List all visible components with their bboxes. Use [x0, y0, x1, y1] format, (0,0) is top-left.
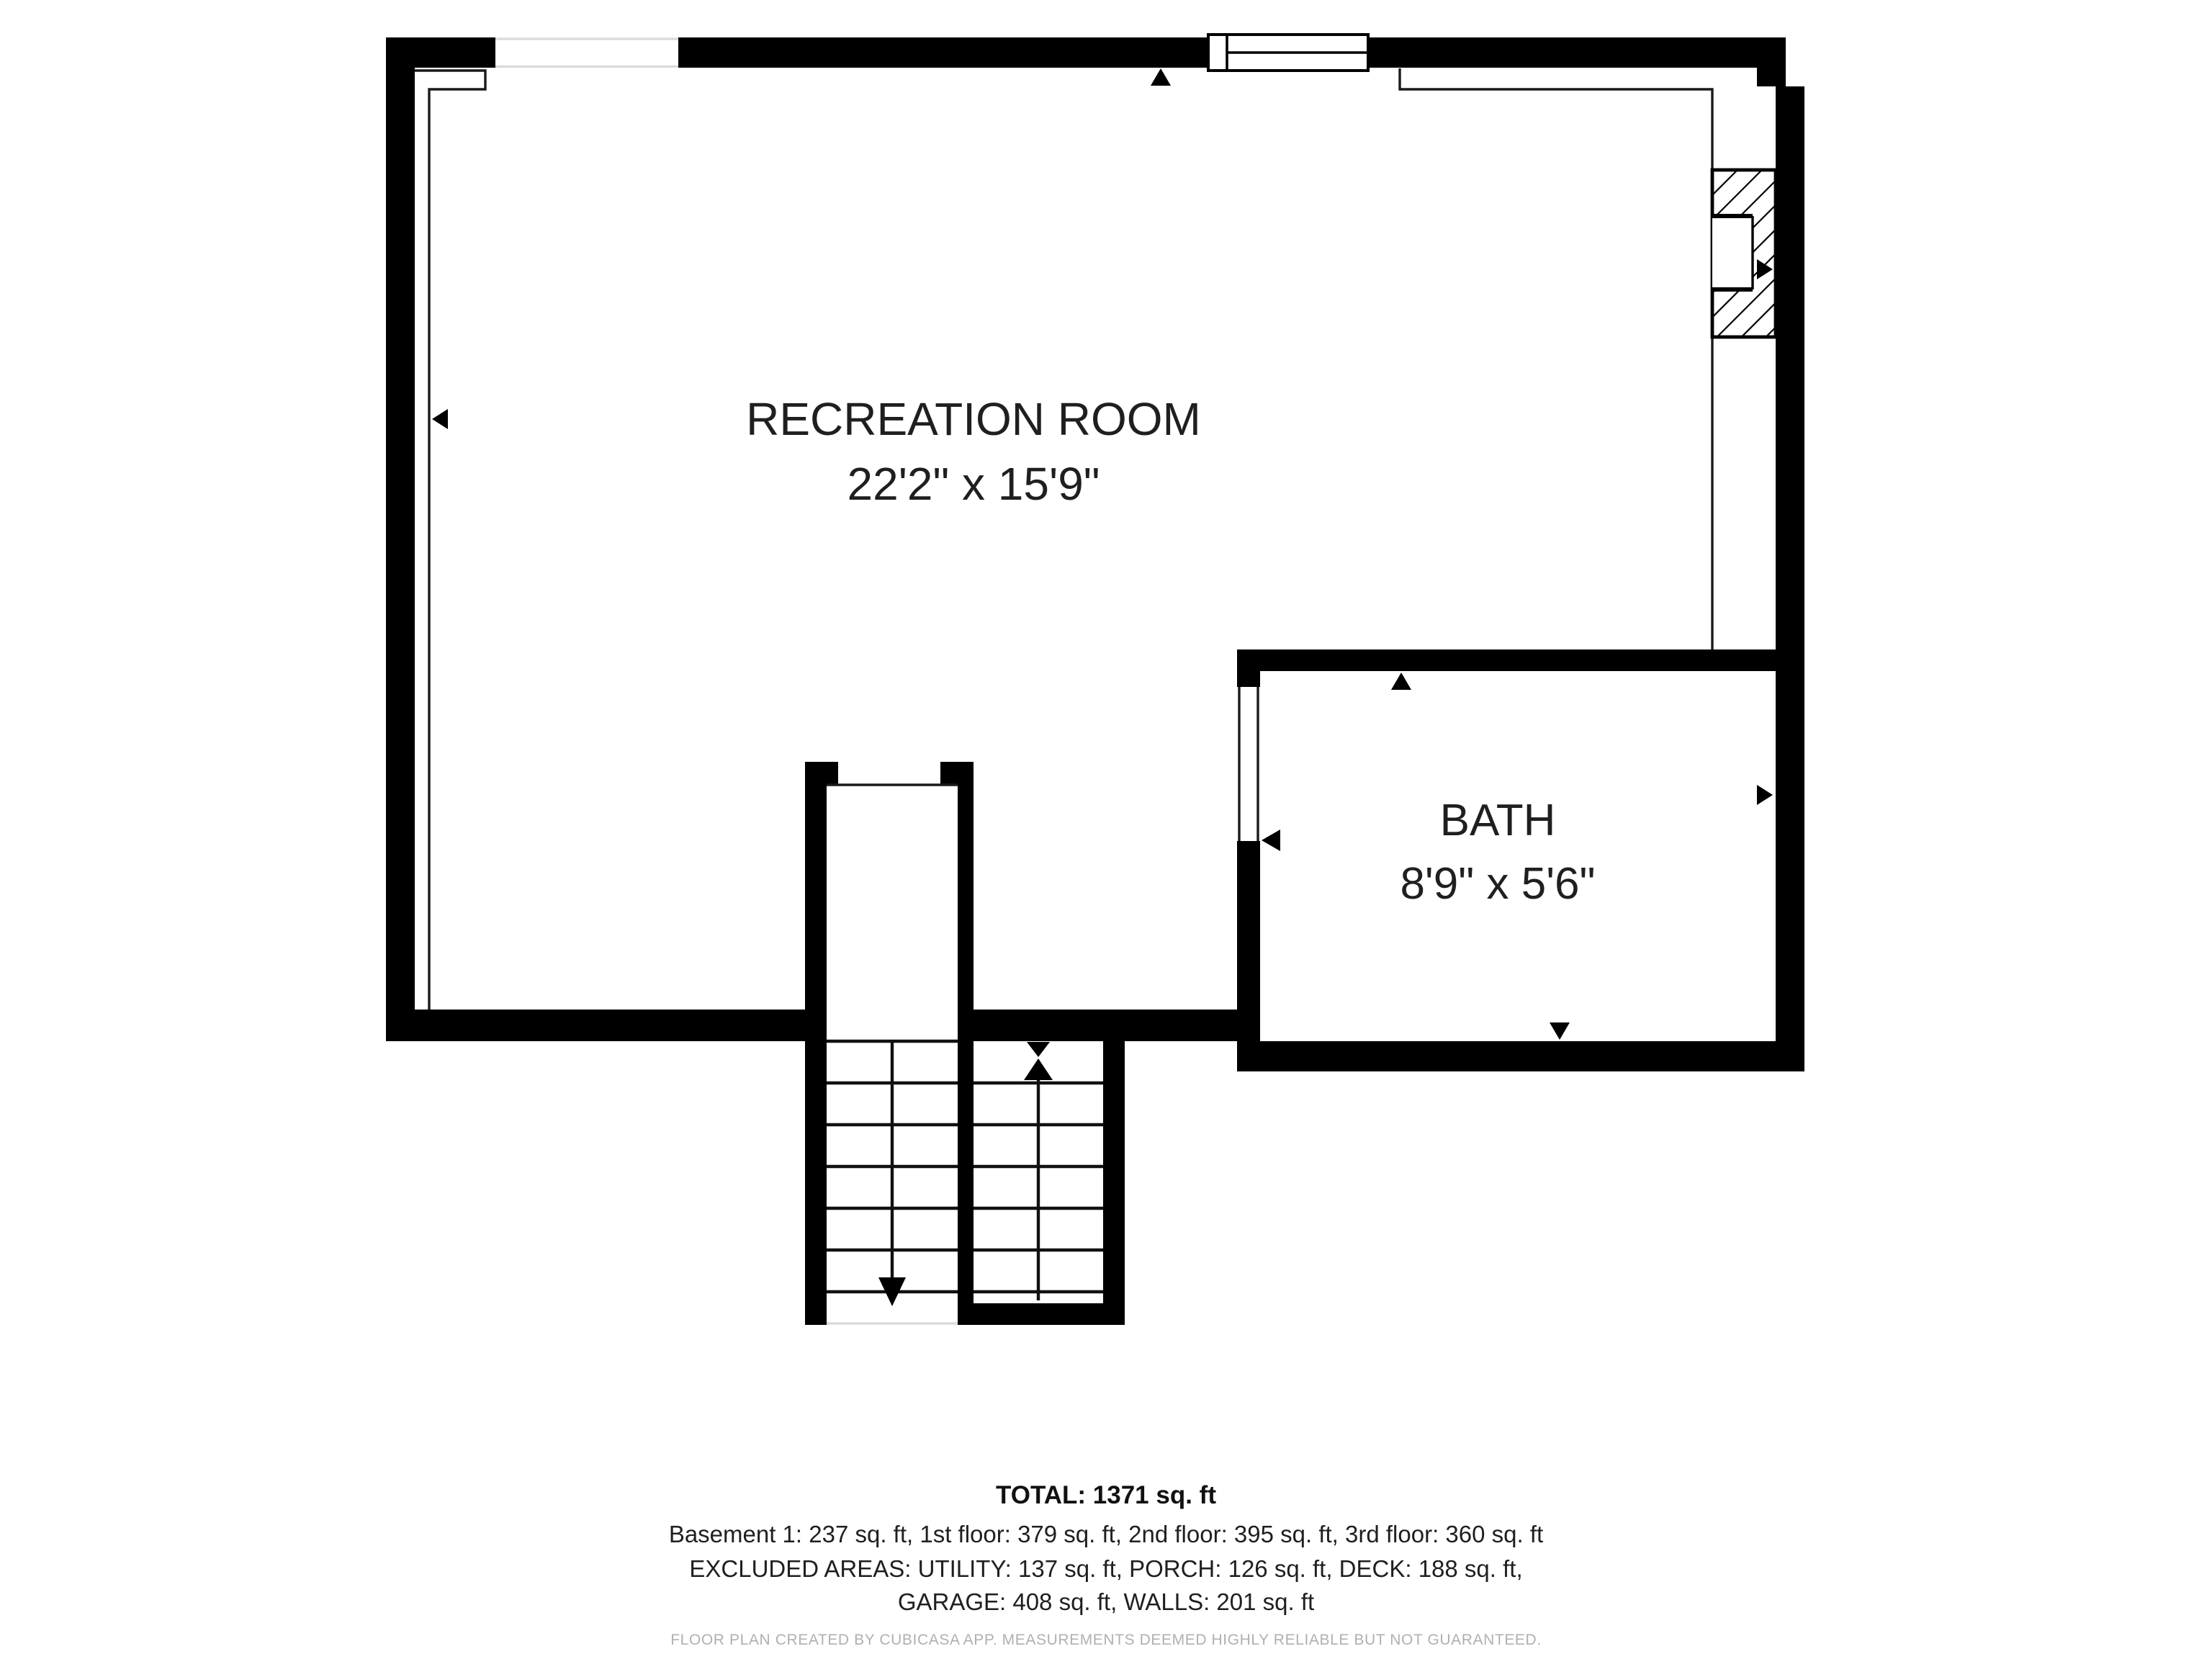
stair-bottom-wall: [958, 1303, 1125, 1325]
right-interior-outline-upper: [1400, 68, 1712, 170]
wall-top-right-corner-step: [1757, 68, 1786, 86]
bath-door-jamb-upper: [1237, 671, 1260, 687]
bath-bottom-wall: [1237, 1041, 1804, 1071]
window-icon: [1208, 35, 1368, 71]
rec-room-west-arrow-icon: [432, 409, 448, 429]
chimney-flue-inset: [1712, 216, 1753, 289]
summary-excluded-line1: EXCLUDED AREAS: UTILITY: 137 sq. ft, POR…: [689, 1555, 1522, 1582]
recreation-room-label: RECREATION ROOM: [746, 393, 1201, 445]
stair-middle-wall: [958, 785, 974, 1303]
wall-bottom-west-segment: [386, 1010, 827, 1041]
wall-right: [1776, 86, 1804, 1071]
floor-plan: RECREATION ROOM 22'2" x 15'9" BATH 8'9" …: [0, 0, 2212, 1659]
stair-up-arrow: [1024, 1042, 1053, 1300]
floor-plan-page: RECREATION ROOM 22'2" x 15'9" BATH 8'9" …: [0, 0, 2212, 1659]
stair-down-arrow: [878, 1041, 906, 1306]
wall-bottom-east-segment: [958, 1010, 1260, 1041]
chimney-hatch: [1712, 170, 1776, 337]
disclaimer-footer: FLOOR PLAN CREATED BY CUBICASA APP. MEAS…: [670, 1632, 1542, 1648]
stair-up-arrowhead-icon: [1024, 1058, 1053, 1080]
wall-left: [386, 37, 415, 1041]
bath-west-arrow-icon: [1262, 829, 1280, 851]
recreation-room-dimensions: 22'2" x 15'9": [848, 458, 1100, 510]
stair-left-wall-cap: [805, 762, 838, 785]
left-interior-outline: [415, 71, 485, 1010]
staircase: [805, 762, 1125, 1325]
bath-dimensions: 8'9" x 5'6": [1400, 859, 1595, 909]
wall-top-middle-segment: [678, 37, 1208, 68]
rec-room-north-arrow-icon: [1151, 68, 1171, 86]
stair-middle-wall-cap: [940, 762, 974, 785]
exterior-walls: [386, 37, 1804, 1071]
summary-excluded-line2: GARAGE: 408 sq. ft, WALLS: 201 sq. ft: [898, 1588, 1314, 1615]
stair-left-wall: [805, 785, 827, 1325]
wall-top-right-segment: [1368, 37, 1786, 68]
summary-floors: Basement 1: 237 sq. ft, 1st floor: 379 s…: [669, 1521, 1543, 1547]
area-summary: TOTAL: 1371 sq. ft Basement 1: 237 sq. f…: [669, 1481, 1543, 1648]
bath-east-arrow-icon: [1757, 785, 1773, 805]
bath-left-wall: [1237, 841, 1260, 1041]
bath-top-wall: [1237, 649, 1804, 671]
bath-north-arrow-icon: [1391, 673, 1411, 690]
bath-south-arrow-icon: [1550, 1022, 1570, 1040]
stair-up-entry-marker-icon: [1027, 1042, 1050, 1057]
stair-right-wall: [1103, 1041, 1125, 1325]
summary-total: TOTAL: 1371 sq. ft: [996, 1481, 1216, 1509]
wall-opening: [495, 39, 678, 66]
bath-label: BATH: [1440, 796, 1556, 845]
